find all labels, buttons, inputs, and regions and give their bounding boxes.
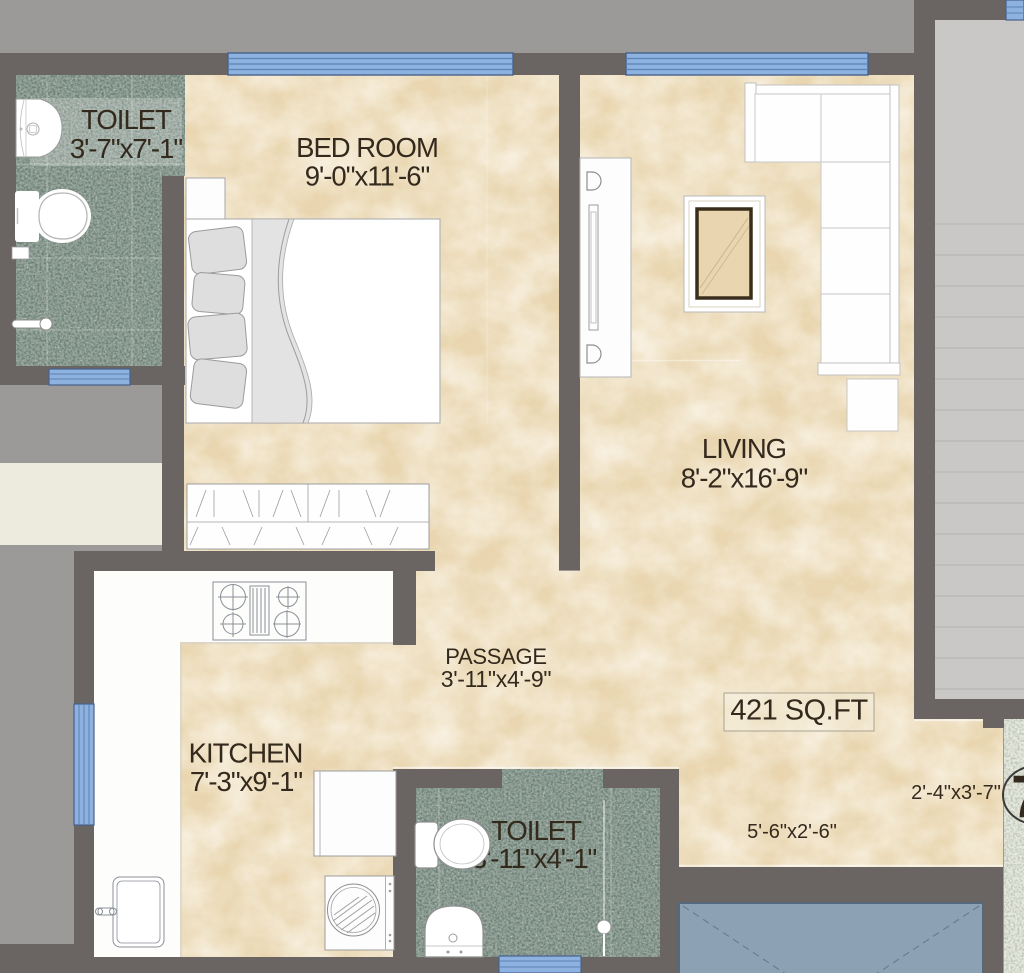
svg-text:KITCHEN: KITCHEN [189, 738, 303, 769]
svg-text:5'-6"x2'-6": 5'-6"x2'-6" [747, 821, 837, 843]
svg-text:3'-11"x4'-9": 3'-11"x4'-9" [441, 666, 552, 692]
svg-text:8'-2"x16'-9": 8'-2"x16'-9" [681, 463, 808, 494]
svg-text:9'-0"x11'-6": 9'-0"x11'-6" [305, 161, 430, 192]
svg-text:421 SQ.FT: 421 SQ.FT [730, 695, 868, 727]
svg-text:3'-7"x7'-1": 3'-7"x7'-1" [70, 133, 183, 164]
svg-text:3'-11"x4'-1": 3'-11"x4'-1" [472, 843, 597, 874]
svg-text:TOILET: TOILET [491, 815, 582, 846]
svg-text:BED ROOM: BED ROOM [296, 132, 438, 163]
svg-text:7: 7 [1011, 763, 1024, 830]
svg-text:TOILET: TOILET [81, 104, 172, 135]
svg-text:2'-4"x3'-7": 2'-4"x3'-7" [911, 782, 1001, 804]
svg-text:LIVING: LIVING [702, 433, 786, 464]
svg-text:7'-3"x9'-1": 7'-3"x9'-1" [190, 766, 303, 797]
